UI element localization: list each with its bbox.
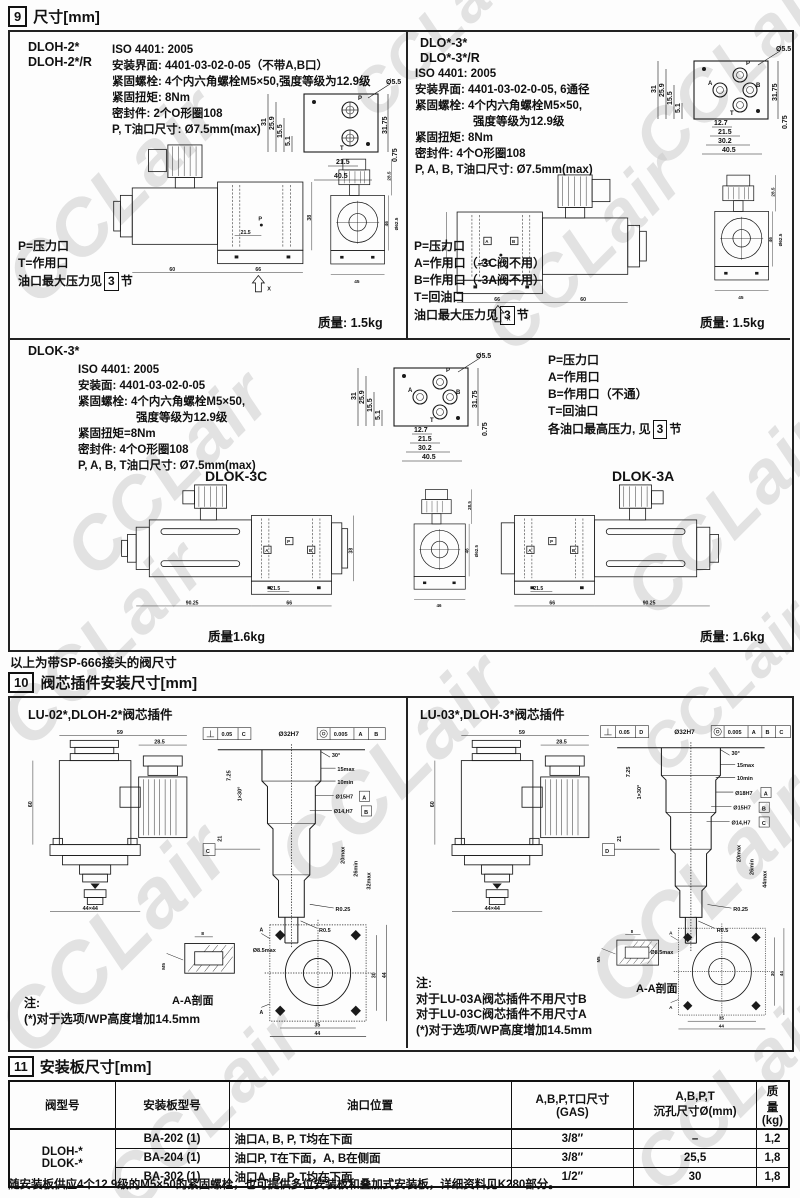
dim-label: Ø32H7 — [279, 731, 300, 738]
lu03-notes: 注: 对于LU-03A阀芯插件不用尺寸B 对于LU-03C阀芯插件不用尺寸A (… — [416, 976, 592, 1038]
pressure-note: 油口最大压力见3节 — [18, 272, 133, 291]
section10-number: 10 — [8, 672, 34, 693]
dim-label: 60 — [169, 267, 175, 273]
dim-label: 15.5 — [277, 124, 284, 138]
dim-label: 38 — [349, 548, 355, 554]
dim-label: 44 — [315, 1031, 321, 1037]
mass-cell: 1,8 — [756, 1149, 789, 1168]
dlok3a-drawing: A P B 21.5 66 90.25 — [486, 482, 728, 622]
col-board-model: 安装板型号 — [115, 1081, 229, 1129]
port-position-cell: 油口P, T在下面，A, B在侧面 — [229, 1149, 511, 1168]
pressure-note: 油口最大压力见3节 — [414, 306, 545, 325]
dim-label: 40.5 — [422, 454, 436, 461]
dim-label: 28.5 — [771, 187, 776, 197]
dim-label: 21.5 — [533, 586, 543, 592]
pressure-note-text: 各油口最高压力, 见 — [548, 422, 651, 436]
dlok3c-drawing: A P B 21.5 90.25 66 38 — [118, 482, 360, 622]
col-mass: 质量 (kg) — [756, 1081, 789, 1129]
dim-label: 10min — [337, 780, 354, 786]
pressure-note-text: 油口最大压力见 — [18, 274, 102, 288]
dim-label: 46 — [464, 548, 469, 553]
port-label: P — [446, 368, 450, 374]
model-name: DLOH-2* — [28, 40, 92, 55]
port-label: B — [456, 390, 461, 396]
dim-label: 7.25 — [227, 770, 233, 781]
dim-label: 66 — [286, 601, 292, 607]
dloh2-end-view-drawing: 28.5 Ø62.5 46 45 — [316, 152, 400, 302]
dim-label: 26min — [354, 860, 360, 877]
spec-line: 紧固扭矩=8Nm — [78, 426, 256, 442]
note-line: 注: — [416, 976, 592, 992]
dim-label: 21 — [617, 836, 623, 842]
dlok3-model: DLOK-3* — [28, 344, 79, 359]
port-label: A — [708, 81, 713, 87]
section9-header: 9 尺寸[mm] — [8, 6, 100, 27]
datum-letter: C — [762, 821, 766, 827]
dim-label: Ø14,H7 — [731, 820, 750, 826]
dim-label: 21 — [217, 836, 223, 842]
lu02-title: LU-02*,DLOH-2*阀芯插件 — [28, 704, 172, 723]
dim-label: R0.25 — [336, 907, 351, 913]
port-line: T=作用口 — [18, 255, 133, 272]
col-port-size: A,B,P,T口尺寸 (GAS) — [511, 1081, 634, 1129]
note-line: (*)对于选项/WP高度增加14.5mm — [416, 1023, 592, 1039]
sp666-note: 以上为带SP-666接头的阀尺寸 — [10, 652, 177, 671]
dlok3c-mass: 质量1.6kg — [208, 626, 265, 645]
dlok3a-end-view-drawing: 28.5 Ø62.5 46 46 — [400, 486, 480, 622]
dim-label: 31.75 — [472, 390, 479, 408]
section-ref-box: 3 — [653, 420, 668, 439]
datum-letter: C — [779, 730, 783, 736]
mass-cell: 1,2 — [756, 1129, 789, 1149]
dim-label: M5 — [596, 956, 601, 962]
dim-label: 21.5 — [270, 586, 280, 592]
port-size-cell: 3/8″ — [511, 1149, 634, 1168]
datum-letter: D — [639, 730, 643, 736]
dim-label: Ø5.5 — [476, 353, 491, 360]
dim-label: 21.5 — [418, 436, 432, 443]
dlo3-mounting-face-drawing: Ø5.5 P A B T 31 25.9 15.5 5.1 12.7 21.5 … — [652, 40, 794, 168]
dim-label: Ø62.5 — [474, 545, 479, 558]
port-line: B=作用口（-3A阀不用） — [414, 272, 545, 289]
datum-letter: B — [766, 730, 770, 736]
divider — [406, 30, 408, 340]
port-position-cell: 油口A, B, P, T均在下面 — [229, 1129, 511, 1149]
spec-line: ISO 4401: 2005 — [415, 66, 593, 82]
dim-label: 40.5 — [722, 147, 736, 154]
section11-title: 安装板尺寸[mm] — [40, 1056, 152, 1077]
note-line: (*)对于选项/WP高度增加14.5mm — [24, 1012, 200, 1028]
dim-label: 45 — [738, 295, 744, 300]
dim-label: 25.9 — [359, 390, 366, 404]
section9-title: 尺寸[mm] — [33, 6, 100, 27]
valve-model-line: DLOH-* — [15, 1146, 110, 1158]
dim-label: 15.5 — [667, 91, 674, 105]
lu03-title: LU-03*,DLOH-3*阀芯插件 — [420, 704, 564, 723]
port-line: P=压力口 — [548, 352, 681, 369]
tolerance-value: 0.005 — [334, 732, 348, 738]
pressure-note: 各油口最高压力, 见3节 — [548, 420, 681, 439]
dim-label: 45 — [354, 279, 360, 284]
section-ref-box: 3 — [104, 272, 119, 291]
dim-label: Ø5.5 — [776, 46, 791, 53]
col-counterbore-line1: A,B,P,T — [639, 1091, 751, 1103]
dim-label: 28.5 — [387, 171, 392, 181]
port-label: P — [746, 61, 750, 67]
dim-label: 30 — [770, 971, 775, 977]
dim-label: 28.5 — [154, 740, 165, 746]
dim-label: 31.75 — [382, 116, 389, 134]
model-name: DLO*-3*/R — [420, 51, 480, 66]
table-row: BA-204 (1) 油口P, T在下面，A, B在侧面 3/8″ 25,5 1… — [9, 1149, 789, 1168]
port-size-cell: 3/8″ — [511, 1129, 634, 1149]
dim-label: 60 — [430, 801, 436, 807]
port-line: P=压力口 — [414, 238, 545, 255]
spec-line: 强度等级为12.9级 — [415, 114, 593, 130]
col-mass-line2: (kg) — [762, 1115, 783, 1127]
spec-line: ISO 4401: 2005 — [112, 42, 370, 58]
counterbore-cell: 30 — [634, 1168, 757, 1188]
col-mass-line1: 质量 — [762, 1083, 783, 1115]
port-label: A — [408, 388, 413, 394]
dim-label: 5.1 — [675, 103, 682, 113]
port-label: P — [550, 539, 553, 544]
datum-letter: D — [605, 849, 609, 855]
port-line: B=作用口（不通） — [548, 386, 681, 403]
note-line: 对于LU-03C阀芯插件不用尺寸A — [416, 1007, 592, 1023]
dlo3-end-view-drawing: 28.5 Ø62.5 46 45 — [700, 168, 784, 318]
datum-letter: A — [362, 795, 366, 801]
dim-label: 59 — [117, 730, 123, 736]
dim-label: 0.75 — [782, 115, 789, 129]
dim-label: 44max — [762, 870, 768, 888]
dim-label: 1×30° — [238, 787, 244, 802]
note-line: 对于LU-03A阀芯插件不用尺寸B — [416, 992, 592, 1008]
counterbore-cell: – — [634, 1129, 757, 1149]
dim-label: 46 — [768, 237, 773, 243]
col-port-size-line2: (GAS) — [517, 1107, 629, 1119]
tolerance-value: 0.005 — [728, 730, 742, 736]
dim-label: 12.7 — [414, 427, 428, 434]
spec-line: 安装界面: 4401-03-02-0-05（不带A,B口） — [112, 58, 370, 74]
port-line: T=回油口 — [414, 289, 545, 306]
spec-line: 安装面: 4401-03-02-0-05 — [78, 378, 256, 394]
dim-label: 20max — [737, 844, 743, 862]
datum-letter: C — [206, 849, 210, 855]
dim-label: 44 — [382, 972, 388, 978]
tolerance-value: 0.05 — [619, 730, 630, 736]
dim-label: 8 — [201, 931, 204, 937]
dloh2-mass: 质量: 1.5kg — [318, 312, 383, 331]
section-cut-label: A — [260, 1010, 264, 1016]
port-line: A=作用口 — [548, 369, 681, 386]
datum-letter: A — [359, 732, 363, 738]
dim-label: 30.2 — [418, 445, 432, 452]
dlo3-port-legend: P=压力口 A=作用口（-3C阀不用） B=作用口（-3A阀不用） T=回油口 … — [414, 238, 545, 325]
datum-letter: C — [242, 732, 246, 738]
port-label: P — [258, 217, 262, 223]
col-valve-model: 阀型号 — [9, 1081, 115, 1129]
dim-label: 44 — [719, 1023, 725, 1028]
dloh2-port-legend: P=压力口 T=作用口 油口最大压力见3节 — [18, 238, 133, 291]
lu02-aa-section-drawing: 8 M5 — [160, 930, 255, 990]
valve-model-line: DLOK-* — [15, 1158, 110, 1170]
dim-label: 28.5 — [467, 501, 472, 510]
spec-line: 密封件: 4个O形圈108 — [415, 146, 593, 162]
col-counterbore-line2: 沉孔尺寸Ø(mm) — [639, 1103, 751, 1119]
pressure-note-suffix: 节 — [669, 422, 681, 436]
spec-line: 紧固螺栓: 4个内六角螺栓M5×50, — [415, 98, 593, 114]
dlo3-mass: 质量: 1.5kg — [700, 312, 765, 331]
dim-label: 26min — [750, 858, 756, 875]
dim-label: Ø62.5 — [778, 233, 783, 246]
dim-label: 31.75 — [772, 83, 779, 101]
dim-label: 90.25 — [186, 601, 199, 607]
datum-letter: A — [752, 730, 756, 736]
col-port-position: 油口位置 — [229, 1081, 511, 1129]
dim-label: 5.1 — [375, 410, 382, 420]
col-counterbore: A,B,P,T 沉孔尺寸Ø(mm) — [634, 1081, 757, 1129]
dim-label: 15max — [337, 767, 355, 773]
dim-label: 30° — [731, 751, 739, 757]
mounting-board-table: 阀型号 安装板型号 油口位置 A,B,P,T口尺寸 (GAS) A,B,P,T … — [8, 1080, 790, 1188]
section-cut-label: A — [669, 930, 673, 935]
dlok3-specs: ISO 4401: 2005 安装面: 4401-03-02-0-05 紧固螺栓… — [78, 362, 256, 474]
dim-label: Ø15H7 — [336, 795, 353, 801]
dim-label: Ø18H7 — [735, 791, 752, 797]
lu03-cartridge-drawing: 59 28.5 60 44×44 — [424, 724, 599, 924]
port-label: T — [730, 111, 734, 117]
table-footnote: 随安装板供应4个12.9级的M5×50的紧固螺栓，也可提供多位安装板和叠加式安装… — [8, 1176, 560, 1192]
datum-letter: A — [764, 792, 768, 798]
dim-label: 10min — [737, 776, 754, 782]
dim-label: 32max — [367, 871, 373, 889]
dlo3-models: DLO*-3* DLO*-3*/R — [420, 36, 480, 66]
port-label: P — [358, 96, 362, 102]
dim-label: 31 — [651, 85, 658, 93]
dim-label: 30.2 — [718, 138, 732, 145]
dim-label: 30 — [372, 972, 378, 978]
divider — [8, 338, 790, 340]
dim-label: 44 — [779, 971, 784, 977]
lu03-aa-section-drawing: 8 M5 — [596, 928, 676, 980]
section9-number: 9 — [8, 6, 27, 27]
dim-label: M5 — [161, 963, 167, 970]
dim-label: 66 — [549, 601, 555, 607]
spec-line: 紧固扭矩: 8Nm — [415, 130, 593, 146]
datum-letter: B — [364, 810, 368, 816]
dim-label: 60 — [580, 297, 586, 303]
dim-label: 66 — [255, 267, 261, 273]
spec-line: 紧固螺栓: 4个内六角螺栓M5×50, — [78, 394, 256, 410]
dim-label: 7.25 — [626, 767, 632, 778]
datum-letter: B — [374, 732, 378, 738]
port-line: T=回油口 — [548, 403, 681, 420]
dlo3-specs: ISO 4401: 2005 安装界面: 4401-03-02-0-05, 6通… — [415, 66, 593, 178]
section-cut-label: A — [669, 1005, 673, 1010]
dloh2-models: DLOH-2* DLOH-2*/R — [28, 40, 92, 70]
port-line: P=压力口 — [18, 238, 133, 255]
divider — [406, 696, 408, 1048]
lu02-flange-drawing: A A 30 44 35 44 — [256, 918, 398, 1040]
port-label: B — [309, 548, 312, 553]
dim-label: 31 — [351, 392, 358, 400]
dim-label: 15max — [737, 763, 755, 769]
dim-label: Ø15H7 — [733, 806, 750, 812]
lu02-notes: 注: (*)对于选项/WP高度增加14.5mm — [24, 996, 200, 1027]
dim-label: 44×44 — [485, 906, 500, 912]
dim-label: R0.25 — [733, 907, 748, 913]
section10-header: 10 阀芯插件安装尺寸[mm] — [8, 672, 197, 693]
col-port-size-line1: A,B,P,T口尺寸 — [517, 1091, 629, 1107]
dim-label: 25.9 — [659, 83, 666, 97]
dim-label: 1×30° — [637, 785, 643, 800]
port-label: B — [756, 83, 761, 89]
dim-label: 0.75 — [482, 422, 489, 436]
lu02-cartridge-drawing: 59 28.5 60 44×44 — [22, 724, 197, 924]
dlok3a-mass: 质量: 1.6kg — [700, 626, 765, 645]
dim-label: Ø14,H7 — [334, 809, 353, 815]
section-ref-box: 3 — [500, 306, 515, 325]
spec-line: 安装界面: 4401-03-02-0-05, 6通径 — [415, 82, 593, 98]
dim-label: 31 — [261, 118, 268, 126]
dim-label: Ø62.5 — [394, 217, 399, 230]
dim-label: 59 — [519, 730, 525, 736]
dlok3-port-legend: P=压力口 A=作用口 B=作用口（不通） T=回油口 各油口最高压力, 见3节 — [548, 352, 681, 439]
tolerance-value: 0.05 — [221, 732, 232, 738]
dim-label: 46 — [436, 603, 441, 608]
datum-letter: B — [762, 806, 766, 812]
dim-label: 35 — [315, 1022, 321, 1028]
dim-label: 46 — [384, 221, 389, 227]
axis-label: X — [267, 286, 271, 292]
pressure-note-suffix: 节 — [121, 274, 133, 288]
section11-header: 11 安装板尺寸[mm] — [8, 1056, 151, 1077]
note-line: 注: — [24, 996, 200, 1012]
dim-label: Ø5.5 — [386, 79, 401, 86]
dim-label: 15.5 — [367, 398, 374, 412]
pressure-note-text: 油口最大压力见 — [414, 308, 498, 322]
port-label: B — [572, 548, 575, 553]
port-line: A=作用口（-3C阀不用） — [414, 255, 545, 272]
dim-label: 12.7 — [714, 120, 728, 127]
dloh2-side-view-drawing: P 21.5 60 66 38 X — [110, 138, 340, 298]
dim-label: 35 — [719, 1016, 725, 1021]
dim-label: 44×44 — [83, 906, 98, 912]
port-label: T — [430, 418, 434, 424]
spec-line: 密封件: 4个O形圈108 — [78, 442, 256, 458]
model-name: DLOH-2*/R — [28, 55, 92, 70]
dim-label: 21.5 — [718, 129, 732, 136]
dim-label: 8 — [631, 929, 634, 934]
dim-label: 30° — [332, 753, 340, 759]
table-header-row: 阀型号 安装板型号 油口位置 A,B,P,T口尺寸 (GAS) A,B,P,T … — [9, 1081, 789, 1129]
port-label: P — [287, 539, 290, 544]
datasheet-page: CCLair CCLair CCLair CCLair CCLair CCLai… — [0, 0, 800, 1198]
mass-cell: 1,8 — [756, 1168, 789, 1188]
board-model-cell: BA-204 (1) — [115, 1149, 229, 1168]
dim-label: 20max — [341, 846, 347, 864]
section-cut-label: A — [260, 928, 264, 934]
lu03-flange-drawing: A A 30 44 35 44 — [666, 918, 794, 1036]
spec-line: 强度等级为12.9级 — [78, 410, 256, 426]
model-name: DLO*-3* — [420, 36, 480, 51]
section11-number: 11 — [8, 1056, 34, 1077]
spec-line: ISO 4401: 2005 — [78, 362, 256, 378]
section10-title: 阀芯插件安装尺寸[mm] — [40, 672, 197, 693]
board-model-cell: BA-202 (1) — [115, 1129, 229, 1149]
pressure-note-suffix: 节 — [517, 308, 529, 322]
dim-label: 38 — [307, 215, 313, 221]
dim-label: 28.5 — [556, 740, 567, 746]
dim-label: 60 — [28, 801, 34, 807]
dim-label: 90.25 — [643, 601, 656, 607]
dlok3-mounting-face-drawing: Ø5.5 P A B T 31 25.9 15.5 5.1 12.7 21.5 … — [352, 352, 494, 470]
dim-label: 25.9 — [269, 116, 276, 130]
dim-label: Ø32H7 — [674, 729, 695, 736]
dim-label: 21.5 — [241, 230, 251, 236]
table-row: DLOH-* DLOK-* BA-202 (1) 油口A, B, P, T均在下… — [9, 1129, 789, 1149]
counterbore-cell: 25,5 — [634, 1149, 757, 1168]
